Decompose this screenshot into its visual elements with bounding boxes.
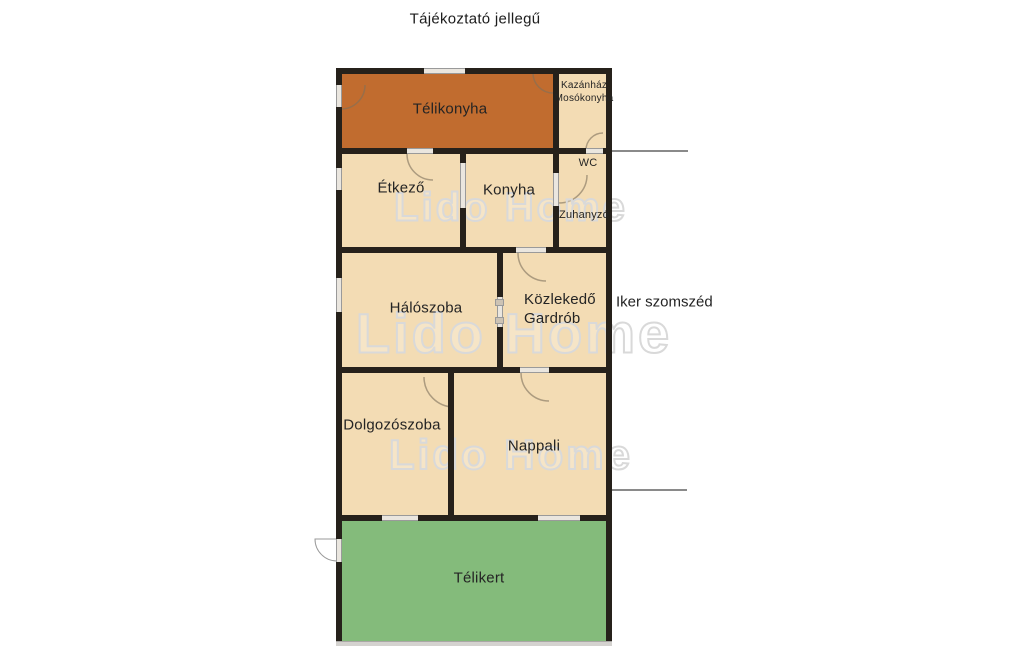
sliding-door-tab: [495, 299, 504, 306]
room-label-kozlekedo-line2: Gardrób: [524, 309, 596, 328]
wall-h3: [336, 367, 612, 373]
winter-garden-glass-wall: [336, 641, 612, 646]
floorplan-canvas: Lido Home Lido Home Lido Home Tájékoztat…: [0, 0, 1024, 655]
room-label-haloszoba: Hálószoba: [390, 300, 463, 317]
neighbor-label: Iker szomszéd: [616, 294, 713, 311]
room-label-dolgozoszoba: Dolgozószoba: [343, 417, 440, 434]
door-opening: [586, 148, 603, 154]
room-label-telikert: Télikert: [454, 570, 505, 587]
wall-h1: [336, 148, 612, 154]
door-opening: [336, 85, 342, 107]
door-opening: [336, 539, 342, 562]
wall-top: [336, 68, 612, 74]
wall-dolgozo-nappali: [448, 367, 454, 521]
room-label-telikonyha: Télikonyha: [413, 101, 488, 118]
door-opening: [553, 173, 559, 206]
room-label-etkezo: Étkező: [377, 180, 424, 197]
window-opening: [424, 68, 465, 74]
room-label-konyha: Konyha: [483, 182, 535, 199]
door-opening: [520, 367, 549, 373]
sliding-door-tab: [495, 317, 504, 324]
neighbor-divider-line: [612, 489, 687, 491]
room-label-kazanhaz-line2: Mosókonyha: [555, 92, 614, 105]
room-label-kazanhaz-line1: Kazánház: [555, 79, 614, 92]
room-label-wc: WC: [579, 157, 598, 169]
room-label-zuhanyzo: Zuhanyzó: [559, 209, 609, 221]
wall-right: [606, 68, 612, 646]
window-opening: [336, 278, 342, 312]
room-label-kozlekedo: Közlekedő Gardrób: [524, 290, 596, 328]
door-opening: [460, 163, 466, 208]
room-label-kozlekedo-line1: Közlekedő: [524, 290, 596, 309]
neighbor-divider-line: [612, 150, 688, 152]
door-opening: [516, 247, 546, 253]
room-label-nappali: Nappali: [508, 438, 560, 455]
room-label-kazanhaz: Kazánház Mosókonyha: [555, 79, 614, 105]
wall-h2: [336, 247, 612, 253]
window-opening: [336, 168, 342, 190]
window-opening: [382, 515, 418, 521]
door-opening: [407, 148, 433, 154]
page-title: Tájékoztató jellegű: [410, 11, 541, 28]
window-opening: [538, 515, 580, 521]
exterior-door-leaf: [315, 539, 337, 561]
